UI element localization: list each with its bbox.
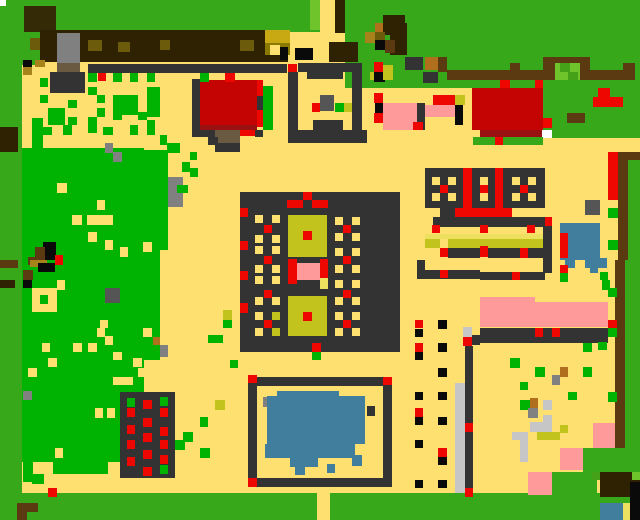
window bbox=[480, 193, 488, 201]
olive-dot bbox=[215, 400, 225, 410]
post-dot bbox=[415, 320, 423, 328]
green-dot bbox=[200, 73, 209, 82]
window bbox=[448, 177, 456, 185]
berry-green bbox=[160, 397, 168, 406]
speckle bbox=[147, 87, 160, 117]
red-dot bbox=[48, 488, 57, 497]
fence-bit bbox=[472, 335, 480, 345]
ring-center bbox=[40, 295, 48, 304]
red-dot bbox=[495, 137, 503, 145]
plot-red bbox=[264, 290, 272, 298]
fence-top bbox=[447, 70, 545, 80]
blob-hole bbox=[55, 448, 63, 458]
red-dot bbox=[543, 118, 552, 128]
speckle bbox=[63, 125, 72, 135]
olive-tile bbox=[383, 65, 393, 80]
pond-water bbox=[267, 396, 365, 444]
red-dot bbox=[527, 225, 535, 233]
altar-gem bbox=[303, 231, 312, 240]
pink-patch bbox=[560, 448, 583, 470]
red-dot bbox=[312, 343, 321, 352]
olive-dot bbox=[344, 103, 352, 112]
trunk-bit bbox=[38, 263, 55, 272]
pond-water bbox=[327, 464, 335, 473]
light-grass-path-edge bbox=[310, 0, 320, 30]
grass-east bbox=[625, 260, 640, 390]
plot-olive bbox=[272, 328, 280, 336]
green-dot bbox=[598, 342, 607, 350]
plot-cell bbox=[335, 297, 343, 305]
red-flower bbox=[593, 97, 623, 107]
dark-walk bbox=[480, 328, 608, 343]
fence-south bbox=[465, 346, 473, 493]
speckle bbox=[130, 73, 138, 82]
copper-block bbox=[425, 57, 438, 70]
blob-hole bbox=[72, 215, 82, 225]
plot-red bbox=[343, 256, 351, 264]
green-dot bbox=[560, 273, 568, 282]
green-dot bbox=[175, 440, 185, 450]
long-table bbox=[448, 239, 543, 248]
window-red bbox=[440, 185, 448, 193]
plot-cell bbox=[255, 235, 263, 243]
post-dot bbox=[415, 408, 423, 417]
blob-hole bbox=[133, 358, 142, 367]
blob-hole bbox=[120, 247, 128, 257]
berry bbox=[127, 440, 135, 449]
pond-water bbox=[352, 455, 362, 466]
gray-dot bbox=[113, 152, 122, 162]
speckle bbox=[147, 73, 155, 82]
speckle bbox=[147, 120, 155, 135]
game-viewport bbox=[0, 0, 640, 520]
plot-cell bbox=[335, 312, 343, 320]
post-dot bbox=[438, 343, 447, 352]
berry bbox=[160, 408, 168, 417]
post-dot bbox=[438, 480, 447, 488]
olive-dot bbox=[223, 310, 232, 320]
pink-path bbox=[480, 297, 535, 327]
plot-red bbox=[240, 271, 248, 280]
berry bbox=[160, 440, 168, 449]
plot-cell bbox=[255, 215, 263, 223]
gray-dot bbox=[528, 408, 538, 418]
red-dot bbox=[535, 328, 543, 337]
stone-block bbox=[57, 33, 80, 63]
plot-cell bbox=[352, 233, 360, 241]
pixel-map[interactable] bbox=[0, 0, 640, 520]
red-bar bbox=[560, 233, 568, 258]
post-dot bbox=[415, 352, 423, 360]
red-dot bbox=[225, 73, 235, 82]
plot-cell bbox=[255, 297, 263, 305]
olive-bit bbox=[375, 32, 385, 40]
window-red bbox=[480, 185, 488, 193]
plot-cell bbox=[255, 328, 263, 336]
green-dot bbox=[583, 343, 592, 352]
plot-red bbox=[240, 208, 248, 217]
house-base bbox=[255, 130, 263, 137]
plot-cell bbox=[352, 217, 360, 225]
red-dot bbox=[374, 93, 383, 103]
blob-hole bbox=[143, 328, 152, 337]
fence-top-right bbox=[590, 70, 623, 80]
speckle bbox=[68, 117, 77, 125]
red-dot bbox=[465, 488, 473, 497]
pink-table bbox=[425, 105, 455, 117]
olive-dot bbox=[560, 425, 568, 433]
tan-row-right bbox=[558, 138, 640, 152]
blob-hole bbox=[113, 352, 122, 360]
tree-accent bbox=[160, 40, 170, 50]
blob-step bbox=[53, 462, 108, 474]
speckle bbox=[138, 112, 147, 120]
green-dot bbox=[200, 417, 208, 427]
shrine-top-wall bbox=[307, 72, 343, 79]
berry bbox=[127, 425, 135, 434]
red-banner bbox=[608, 152, 618, 200]
red-bit bbox=[240, 130, 255, 136]
green-dot bbox=[600, 272, 608, 280]
light-green-bit bbox=[632, 472, 640, 480]
blob-hole bbox=[97, 200, 105, 210]
trunk-bit bbox=[23, 67, 32, 75]
light-pole bbox=[455, 383, 465, 493]
bed-end bbox=[288, 259, 297, 284]
red-dot bbox=[440, 270, 448, 278]
plot-red bbox=[264, 256, 272, 264]
post-dot bbox=[415, 440, 423, 448]
red-dot bbox=[374, 62, 383, 72]
stand-dark bbox=[423, 72, 438, 83]
plot-cell bbox=[335, 248, 343, 256]
gold-tiles bbox=[265, 30, 290, 43]
speckle bbox=[130, 125, 138, 135]
grass-below-barn bbox=[473, 137, 543, 145]
speckle bbox=[40, 78, 48, 87]
plot-cell bbox=[272, 276, 280, 284]
plot-cell bbox=[335, 280, 343, 288]
red-dot bbox=[248, 375, 257, 383]
window bbox=[480, 177, 488, 185]
house-left-wall bbox=[192, 79, 200, 137]
blob-hole bbox=[42, 343, 50, 352]
plot-cell bbox=[352, 312, 360, 320]
trough-bit bbox=[590, 265, 598, 273]
red-dot bbox=[288, 64, 297, 72]
pond-wall-bottom bbox=[248, 478, 392, 487]
black-bit bbox=[295, 48, 315, 60]
brown-dot bbox=[153, 337, 160, 345]
blob-hole bbox=[57, 280, 65, 290]
pond-wall-top bbox=[248, 377, 392, 386]
red-dot bbox=[608, 320, 617, 328]
pond-rock bbox=[367, 406, 375, 416]
black-post bbox=[455, 105, 463, 125]
blob-hole bbox=[147, 377, 160, 390]
red-dot bbox=[545, 217, 552, 226]
yard-fence bbox=[417, 270, 480, 279]
red-dot bbox=[480, 225, 488, 233]
blob-hole bbox=[28, 368, 37, 377]
table-shadow bbox=[488, 248, 520, 258]
post-dot bbox=[415, 343, 423, 352]
post-dot bbox=[438, 448, 447, 457]
plot-cell bbox=[352, 248, 360, 256]
olive-bar bbox=[537, 432, 560, 440]
speckle bbox=[68, 100, 77, 108]
green-dot bbox=[312, 352, 321, 360]
brown-post bbox=[438, 57, 447, 72]
speckle bbox=[48, 108, 65, 125]
plot-cell bbox=[255, 265, 263, 273]
speckle bbox=[97, 95, 105, 103]
black-corner bbox=[630, 482, 640, 520]
trunk-bit bbox=[23, 280, 32, 288]
grass-se bbox=[552, 472, 597, 493]
gold-bit bbox=[365, 32, 375, 43]
trunk-left bbox=[0, 280, 15, 288]
plot-red bbox=[240, 303, 248, 313]
window bbox=[432, 193, 440, 201]
pink-patch bbox=[528, 472, 552, 495]
brown-bit bbox=[385, 40, 395, 53]
green-patch bbox=[208, 335, 223, 343]
blob-hole bbox=[143, 242, 152, 252]
post-dot bbox=[415, 480, 423, 488]
green-dot bbox=[608, 328, 617, 337]
plot-cell bbox=[352, 265, 360, 273]
speckle bbox=[43, 127, 52, 135]
plot-cell bbox=[272, 246, 280, 254]
table-shadow bbox=[528, 248, 543, 258]
red-dot bbox=[560, 265, 568, 273]
tree-accent bbox=[88, 40, 102, 51]
marker-gray bbox=[463, 327, 472, 337]
plot-red bbox=[287, 200, 303, 208]
stone-base bbox=[57, 63, 80, 72]
blob-hole bbox=[88, 232, 97, 242]
post-dot bbox=[438, 320, 447, 329]
window-red bbox=[520, 185, 528, 193]
blob-hole bbox=[107, 408, 115, 418]
red-dot bbox=[512, 272, 520, 280]
speckle bbox=[88, 117, 97, 133]
red-dot bbox=[55, 255, 63, 265]
plot-red bbox=[312, 200, 328, 208]
post-dot bbox=[438, 457, 447, 465]
hall-red-bar bbox=[495, 168, 503, 208]
red-dot bbox=[440, 248, 448, 257]
blob-step bbox=[32, 474, 44, 484]
long-table bbox=[425, 239, 440, 248]
grass-east bbox=[628, 160, 640, 260]
berry bbox=[143, 467, 152, 476]
gray-rock bbox=[105, 288, 120, 303]
bench bbox=[17, 512, 27, 520]
plot-cell bbox=[335, 328, 343, 336]
seed-gray bbox=[543, 400, 552, 410]
tree-accent bbox=[118, 42, 130, 52]
plot-cell bbox=[272, 235, 280, 243]
house-shadow bbox=[215, 143, 240, 152]
speckle bbox=[32, 118, 43, 148]
seed-gray bbox=[520, 437, 528, 462]
plot-red bbox=[343, 290, 351, 298]
speckle bbox=[40, 95, 48, 103]
shrine-bottom-wall bbox=[288, 130, 367, 143]
blob-hole bbox=[105, 240, 113, 250]
pink-bed bbox=[297, 263, 320, 280]
speckle bbox=[190, 168, 198, 177]
well-water bbox=[600, 503, 623, 520]
shrine-top-wall bbox=[298, 63, 353, 72]
plot-red bbox=[240, 241, 248, 250]
pink-table bbox=[383, 103, 417, 130]
green-dot bbox=[568, 392, 577, 400]
post-dot bbox=[415, 392, 423, 400]
blob-hole bbox=[73, 343, 82, 352]
blob-hole bbox=[95, 408, 103, 418]
house-door bbox=[215, 130, 240, 143]
red-dot bbox=[374, 113, 383, 123]
pond-water bbox=[295, 466, 305, 475]
speckle bbox=[167, 143, 180, 153]
berry bbox=[127, 457, 135, 466]
window bbox=[512, 177, 520, 185]
bush-frame-right bbox=[580, 63, 590, 80]
grass-east bbox=[625, 390, 640, 448]
window bbox=[528, 177, 536, 185]
green-dot bbox=[200, 448, 210, 458]
plot-cell bbox=[255, 312, 263, 320]
green-dot bbox=[223, 320, 232, 328]
berry bbox=[143, 418, 152, 427]
berry bbox=[143, 433, 152, 442]
dark-crate bbox=[50, 72, 85, 93]
speckle bbox=[88, 73, 97, 82]
wall-bit bbox=[545, 260, 552, 272]
olive-dot bbox=[455, 95, 465, 105]
berry bbox=[143, 400, 152, 409]
gray-dot bbox=[23, 391, 32, 400]
white-speck bbox=[0, 0, 6, 6]
shrine-altar bbox=[320, 95, 334, 111]
trunk-left bbox=[0, 127, 18, 152]
post-dot bbox=[438, 392, 447, 400]
fence-stub bbox=[628, 152, 640, 160]
red-dot bbox=[98, 73, 106, 81]
red-dot bbox=[248, 478, 257, 487]
blob-hole bbox=[100, 320, 108, 328]
bush-accent bbox=[560, 63, 570, 72]
speckle bbox=[88, 87, 97, 95]
green-dot bbox=[608, 208, 618, 218]
window bbox=[528, 193, 536, 201]
berry bbox=[127, 408, 135, 417]
grass-right-of-barn bbox=[543, 80, 640, 138]
speckle bbox=[182, 162, 190, 172]
red-dot bbox=[500, 80, 510, 88]
post-dot bbox=[415, 417, 423, 425]
plot-cell bbox=[272, 297, 280, 305]
pond-water bbox=[265, 444, 355, 458]
red-barn bbox=[472, 88, 543, 130]
plot-cell bbox=[255, 246, 263, 254]
red-dot bbox=[465, 423, 473, 432]
plot-cell bbox=[272, 215, 280, 223]
berry bbox=[143, 450, 152, 459]
pond-wall-right bbox=[383, 386, 392, 478]
window bbox=[448, 193, 456, 201]
gray-crate bbox=[585, 200, 600, 215]
red-dot bbox=[480, 246, 488, 257]
seed-gray bbox=[530, 422, 552, 432]
path-gap-bottom bbox=[317, 493, 330, 520]
plot-red bbox=[264, 320, 272, 328]
fence-east bbox=[618, 152, 628, 260]
red-dot bbox=[312, 103, 320, 112]
blob-hole bbox=[88, 343, 97, 352]
green-strip bbox=[263, 86, 273, 130]
red-roof-house bbox=[200, 80, 257, 127]
grass-se bbox=[583, 448, 640, 472]
gray-dot bbox=[552, 375, 560, 385]
black-bit bbox=[280, 47, 288, 60]
plot-cell bbox=[352, 328, 360, 336]
blob-hole bbox=[57, 183, 67, 193]
blob-hole bbox=[105, 336, 113, 345]
red-dot bbox=[520, 248, 528, 258]
window bbox=[432, 177, 440, 185]
plot-cell bbox=[255, 276, 263, 284]
berry-green bbox=[127, 398, 135, 407]
tan-notch bbox=[270, 45, 280, 55]
green-dot bbox=[230, 360, 238, 368]
plot-cell bbox=[352, 280, 360, 288]
speckle bbox=[160, 135, 167, 145]
green-dot bbox=[608, 240, 618, 250]
house-base bbox=[192, 130, 215, 137]
fence-stub bbox=[510, 63, 520, 71]
road-strip bbox=[88, 64, 287, 73]
green-dot bbox=[510, 358, 520, 368]
plot-cell bbox=[335, 233, 343, 241]
plot-red bbox=[264, 225, 272, 233]
tree-trunk-top bbox=[335, 0, 345, 33]
white-tile bbox=[542, 130, 552, 138]
green-dot bbox=[608, 288, 617, 297]
speckle bbox=[113, 112, 122, 120]
hall-base bbox=[440, 208, 455, 217]
bush-frame-left bbox=[543, 63, 555, 80]
tree-accent bbox=[30, 38, 40, 50]
red-dot bbox=[432, 225, 440, 233]
red-dot bbox=[413, 122, 423, 130]
red-dot bbox=[463, 337, 472, 346]
shrine-right-wall bbox=[352, 63, 362, 133]
green-dot bbox=[335, 103, 344, 112]
red-bar bbox=[433, 95, 455, 105]
log bbox=[567, 113, 585, 123]
trunk-left bbox=[0, 260, 18, 268]
tree-line-right bbox=[328, 42, 358, 62]
trunk-bit bbox=[35, 60, 45, 67]
plot-red bbox=[303, 192, 312, 200]
pale-tile bbox=[623, 503, 630, 520]
berry-green bbox=[160, 465, 168, 474]
plot-red bbox=[343, 225, 351, 233]
